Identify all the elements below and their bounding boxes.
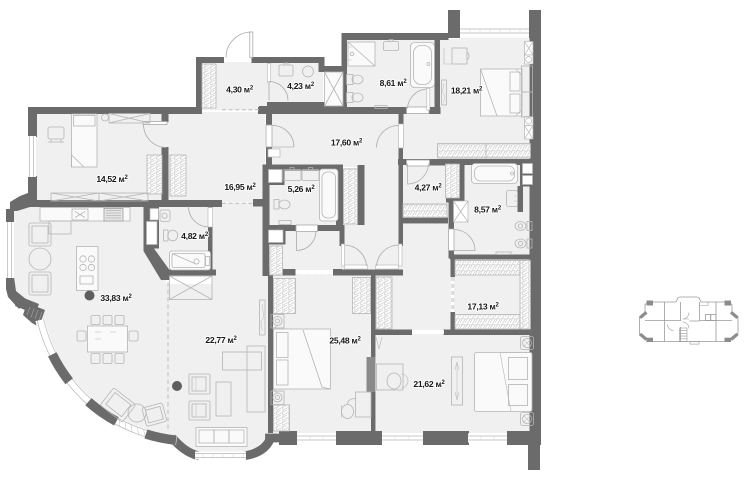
svg-text:16,95 м2: 16,95 м2 [224,182,256,192]
svg-text:4,27 м2: 4,27 м2 [415,183,443,193]
svg-text:33,83 м2: 33,83 м2 [100,293,132,303]
svg-text:22,77 м2: 22,77 м2 [205,335,237,345]
svg-text:25,48 м2: 25,48 м2 [329,336,361,346]
svg-text:4,30 м2: 4,30 м2 [226,85,254,95]
svg-text:17,13 м2: 17,13 м2 [467,302,499,312]
svg-text:14,52 м2: 14,52 м2 [96,174,128,184]
svg-text:4,82 м2: 4,82 м2 [181,231,209,241]
svg-text:4,23 м2: 4,23 м2 [287,81,315,91]
svg-text:21,62 м2: 21,62 м2 [413,379,445,389]
svg-text:17,60 м2: 17,60 м2 [331,138,363,148]
svg-text:5,26 м2: 5,26 м2 [288,184,316,194]
svg-text:18,21 м2: 18,21 м2 [451,86,483,96]
svg-text:8,57 м2: 8,57 м2 [474,205,502,215]
svg-text:8,61 м2: 8,61 м2 [380,78,408,88]
